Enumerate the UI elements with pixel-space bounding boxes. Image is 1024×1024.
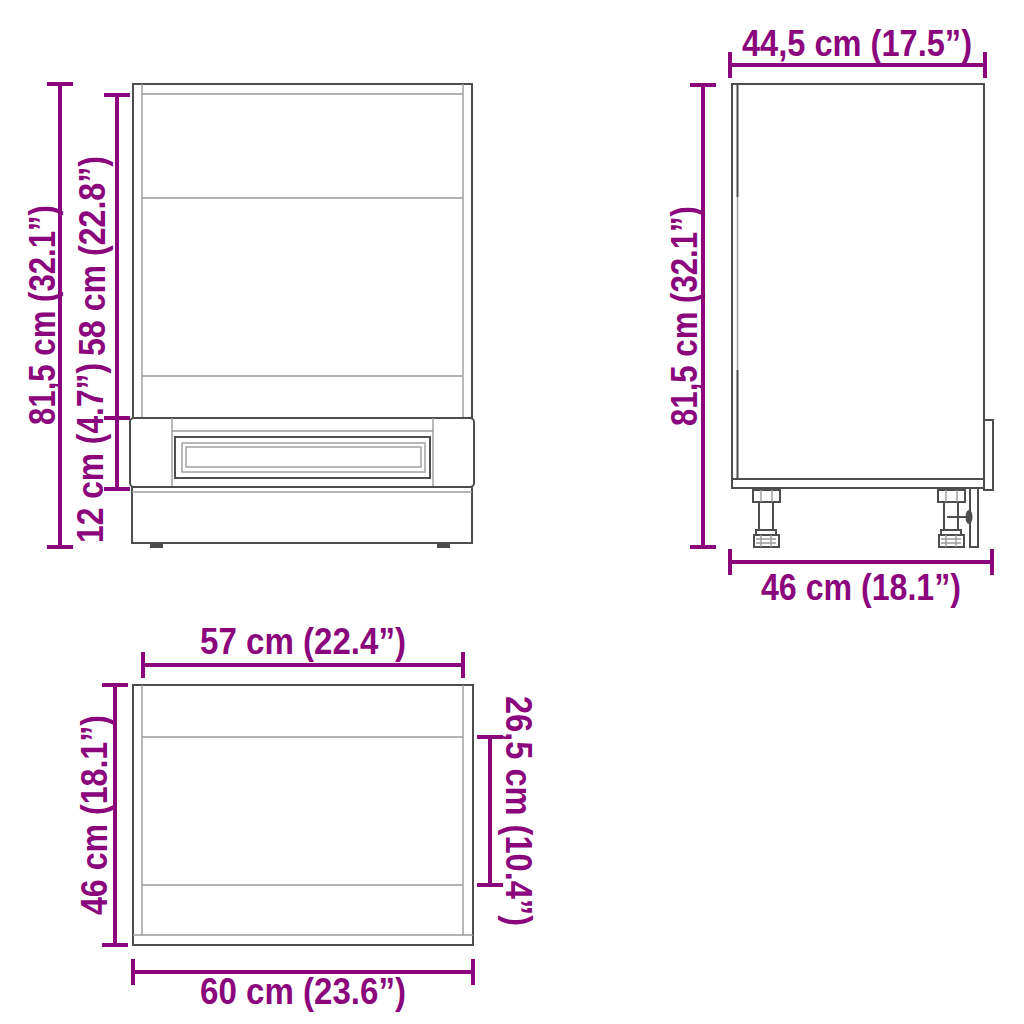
side-view [732, 84, 993, 547]
dim-front-upper-height-label: 58 cm (22.8”) [72, 156, 113, 356]
top-view [133, 685, 473, 945]
front-plinth [132, 487, 472, 543]
side-view-dimensions: 44,5 cm (17.5”) 81,5 cm (32.1”) 46 cm (1… [664, 23, 993, 608]
dim-front-drawer-height-label: 12 cm (4.7”) [70, 363, 111, 543]
diagram-canvas: 81,5 cm (32.1”) 58 cm (22.8”) 12 cm (4.7… [0, 0, 1024, 1024]
side-vent-panel-edge [984, 420, 993, 490]
top-view-dimensions: 57 cm (22.4”) 46 cm (18.1”) 26,5 cm (10.… [74, 621, 539, 1012]
side-foot-rear [938, 490, 973, 547]
cabinet-dimension-diagram: 81,5 cm (32.1”) 58 cm (22.8”) 12 cm (4.7… [0, 0, 1024, 1024]
foot-rear-adjuster-knob [966, 510, 973, 524]
dim-top-inner-width-label: 57 cm (22.4”) [200, 621, 406, 662]
dim-top-side-depth-label: 46 cm (18.1”) [74, 715, 115, 915]
dim-top-outer-width-label: 60 cm (23.6”) [200, 971, 406, 1012]
dim-side-top-depth-label: 44,5 cm (17.5”) [742, 23, 972, 64]
side-foot-front [753, 490, 780, 547]
front-view [130, 84, 474, 548]
front-carcass-inner-lines [142, 84, 463, 418]
dim-top-opening-depth-label: 26,5 cm (10.4”) [498, 696, 539, 926]
dim-side-bottom-depth-label: 46 cm (18.1”) [761, 567, 961, 608]
top-body-outline [133, 685, 473, 945]
dim-side-total-height-label: 81,5 cm (32.1”) [664, 206, 705, 426]
top-inner-lines [133, 685, 473, 935]
front-view-dimensions: 81,5 cm (32.1”) 58 cm (22.8”) 12 cm (4.7… [22, 84, 131, 547]
side-body-outline [732, 84, 984, 488]
dim-front-total-height-label: 81,5 cm (32.1”) [22, 205, 63, 425]
front-carcass-outline [133, 84, 472, 418]
